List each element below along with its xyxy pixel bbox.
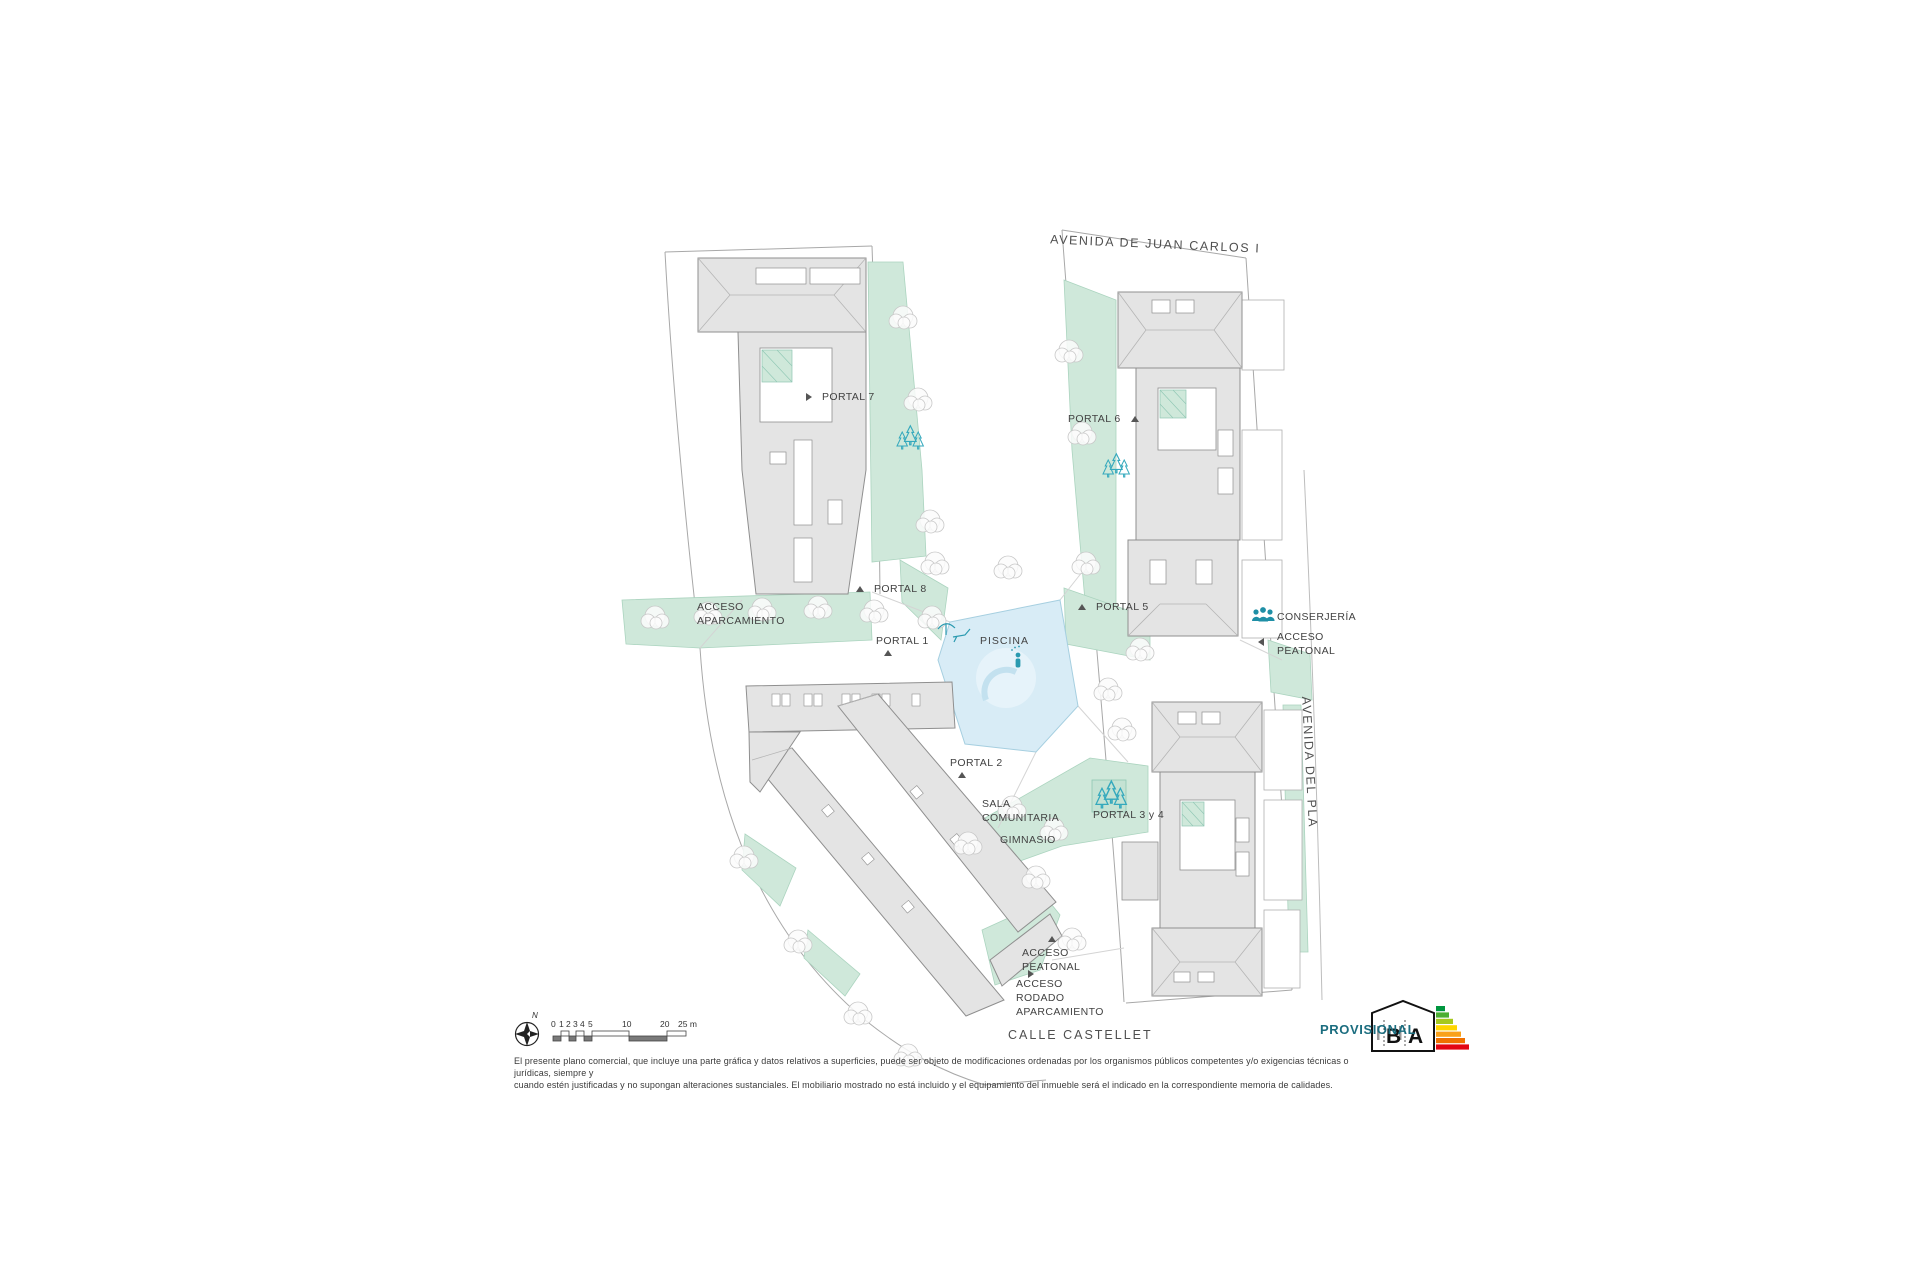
footer-disclaimer: El presente plano comercial, que incluye… [514, 1055, 1374, 1091]
pool-shape [938, 600, 1078, 752]
scale-tick-3: 3 [573, 1019, 578, 1029]
scale-tick-4: 4 [580, 1019, 585, 1029]
portal-7-text: PORTAL 7 [822, 391, 875, 403]
label-portal-1: PORTAL 1 [876, 634, 929, 648]
scale-tick-25m: 25 m [678, 1019, 697, 1029]
label-portal-3-4: PORTAL 3 y 4 [1093, 808, 1164, 822]
portal-6-text: PORTAL 6 [1068, 413, 1121, 425]
label-acceso-peatonal-right: ACCESO PEATONAL [1277, 630, 1335, 658]
arrow-up-icon [1131, 416, 1139, 422]
north-compass-icon [515, 1022, 539, 1046]
label-conserjeria: CONSERJERÍA [1277, 610, 1356, 624]
label-portal-5: PORTAL 5 [1078, 600, 1149, 614]
label-portal-8: PORTAL 8 [856, 582, 927, 596]
label-sala-comunitaria: SALA COMUNITARIA [982, 797, 1059, 825]
scale-tick-0: 0 [551, 1019, 556, 1029]
scale-tick-1: 1 [559, 1019, 564, 1029]
scale-tick-2: 2 [566, 1019, 571, 1029]
portal-5-text: PORTAL 5 [1096, 601, 1149, 613]
label-portal-7: PORTAL 7 [806, 390, 875, 404]
north-letter: N [532, 1011, 538, 1020]
arrow-up-icon [856, 586, 864, 592]
energy-scale-bars [1436, 1006, 1469, 1050]
building-portal-3-4 [1122, 702, 1302, 996]
label-acceso-aparcamiento: ACCESO APARCAMIENTO [697, 600, 785, 628]
street-label-castellet: CALLE CASTELLET [1008, 1027, 1153, 1044]
label-acceso-rodado: ACCESO RODADO APARCAMIENTO [1016, 977, 1104, 1020]
label-portal-2: PORTAL 2 [950, 756, 1003, 770]
arrow-up-icon [1078, 604, 1086, 610]
portal-8-text: PORTAL 8 [874, 583, 927, 595]
label-gimnasio: GIMNASIO [1000, 833, 1056, 847]
portal-2-arrow-up-icon [958, 772, 966, 778]
acceso-peatonal-arrow-left-icon [1258, 638, 1264, 646]
portal-1-arrow-up-icon [884, 650, 892, 656]
scale-bar [553, 1031, 686, 1041]
scale-tick-5: 5 [588, 1019, 593, 1029]
site-plan-page: B A AVENIDA DE JUAN CARLOS I AVENIDA DEL… [0, 0, 1920, 1280]
scale-tick-10: 10 [622, 1019, 631, 1029]
acceso-peatonal-arrow-up-icon [1048, 936, 1056, 942]
label-portal-6: PORTAL 6 [1068, 412, 1139, 426]
provisional-stamp: PROVISIONAL [1320, 1022, 1416, 1037]
arrow-right-icon [806, 393, 812, 401]
label-piscina: PISCINA [980, 634, 1029, 648]
building-portal-5-6 [1118, 292, 1284, 638]
scale-tick-20: 20 [660, 1019, 669, 1029]
building-portal-7-8 [698, 258, 866, 594]
